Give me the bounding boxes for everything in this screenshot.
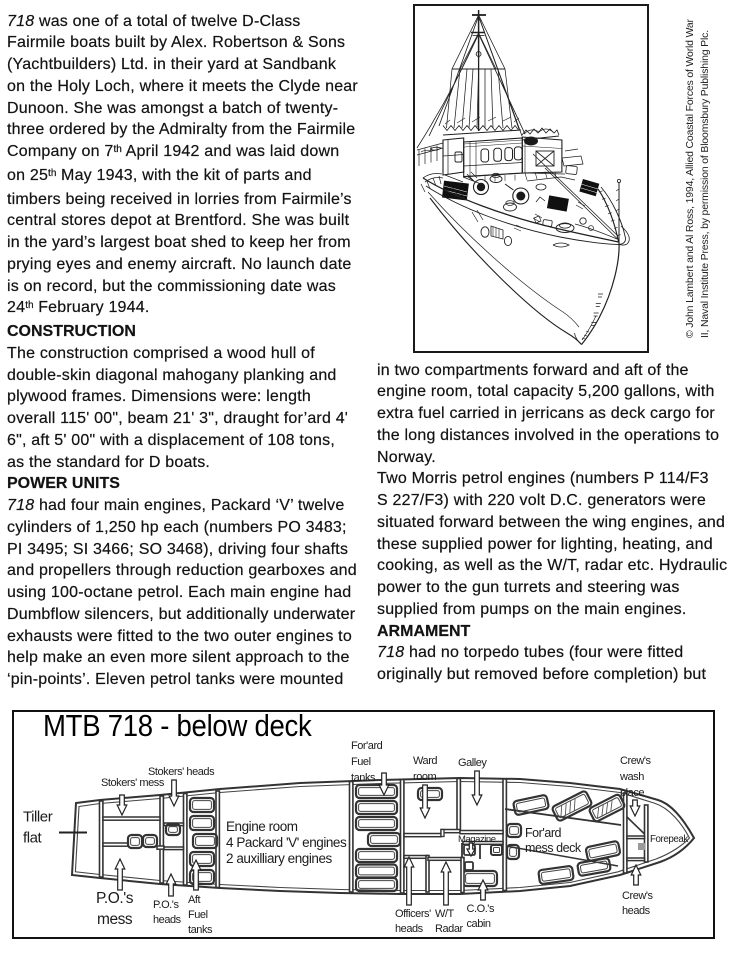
svg-text:Engine room: Engine room [226,819,298,834]
svg-text:room: room [413,771,437,783]
svg-text:Magazine: Magazine [458,834,496,845]
svg-text:mess: mess [97,911,133,928]
svg-text:P.O.'s: P.O.'s [96,890,134,907]
svg-text:Forepeak: Forepeak [650,834,688,845]
svg-text:flat: flat [23,830,42,847]
svg-text:Ward: Ward [413,755,437,767]
svg-text:heads: heads [153,914,182,926]
svg-text:tanks: tanks [351,772,376,784]
svg-text:Galley: Galley [458,757,487,769]
svg-text:Crew's: Crew's [622,890,654,902]
svg-text:Stokers' heads: Stokers' heads [148,766,215,778]
svg-text:Fuel: Fuel [188,909,208,921]
svg-text:Aft: Aft [188,894,200,906]
svg-text:4 Packard 'V' engines: 4 Packard 'V' engines [226,835,347,850]
svg-text:Stokers' mess: Stokers' mess [101,777,165,789]
svg-text:For'ard: For'ard [351,740,383,752]
svg-text:Officers': Officers' [395,908,431,920]
svg-text:tanks: tanks [188,924,213,936]
svg-text:Crew's: Crew's [620,755,652,767]
svg-text:C.O.'s: C.O.'s [467,903,495,915]
svg-text:place: place [620,787,644,799]
svg-text:heads: heads [622,905,651,917]
svg-text:Radar: Radar [435,923,463,935]
svg-text:cabin: cabin [467,918,491,930]
svg-text:mess deck: mess deck [525,841,582,855]
svg-text:wash: wash [619,771,644,783]
svg-text:heads: heads [395,923,424,935]
svg-text:Tiller: Tiller [23,809,53,826]
svg-text:P.O.'s: P.O.'s [153,899,179,911]
svg-text:Fuel: Fuel [351,756,371,768]
svg-text:2 auxilliary engines: 2 auxilliary engines [226,851,333,866]
svg-text:W/T: W/T [435,908,455,920]
svg-text:For'ard: For'ard [525,826,562,840]
